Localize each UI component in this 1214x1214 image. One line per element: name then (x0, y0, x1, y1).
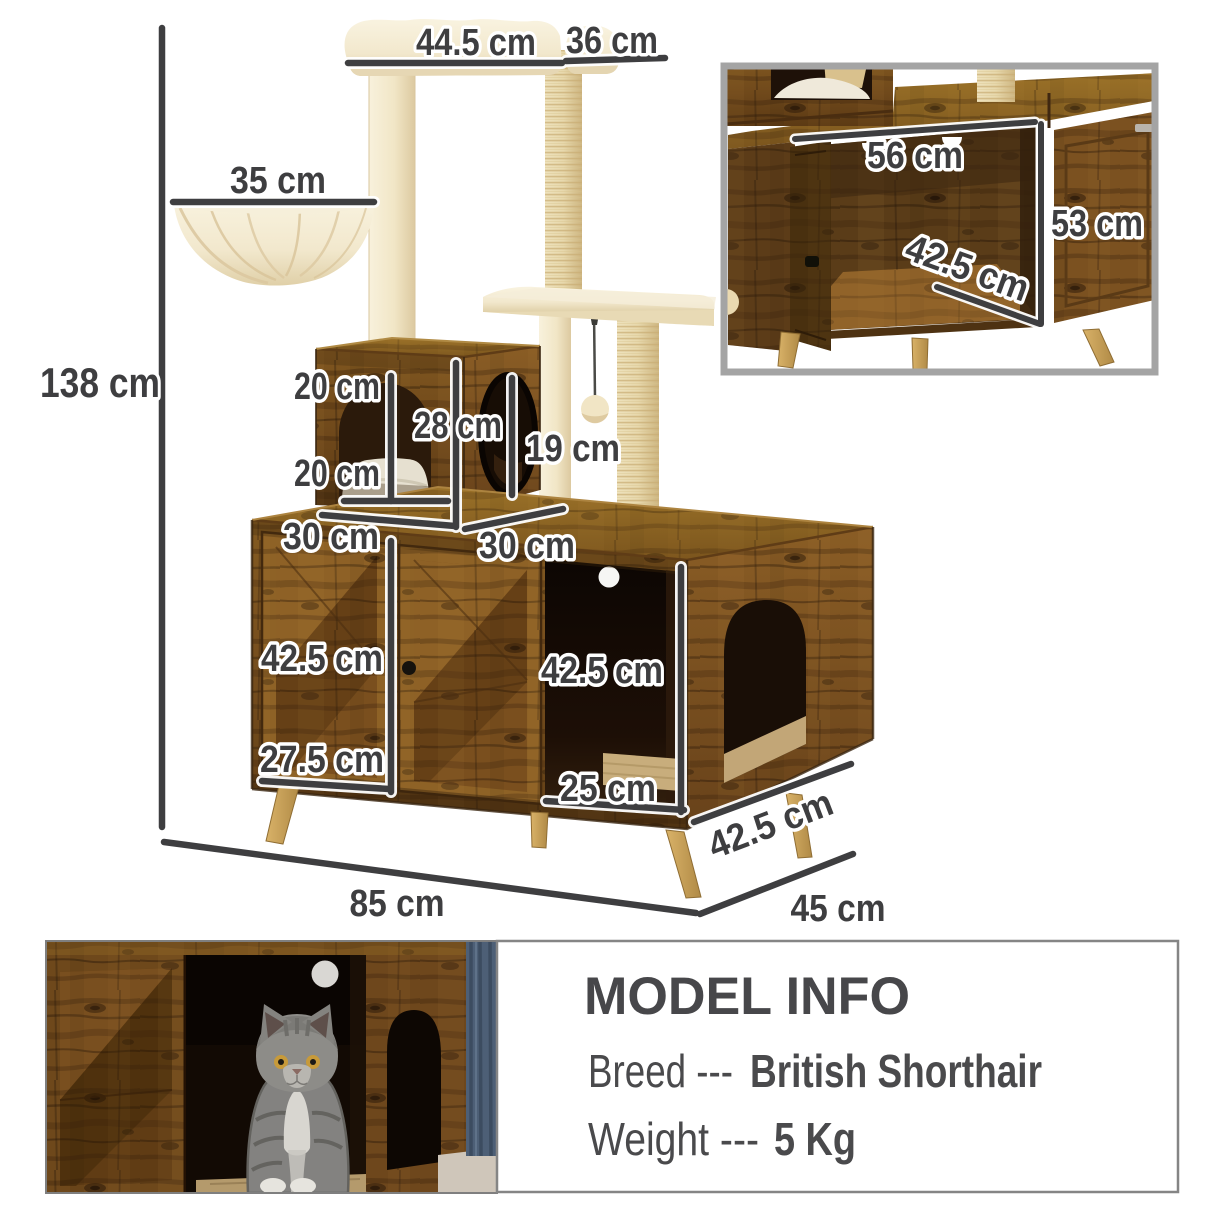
svg-text:44.5 cm: 44.5 cm (416, 22, 536, 64)
svg-text:36 cm: 36 cm (566, 20, 658, 62)
svg-text:Weight ---: Weight --- (588, 1113, 759, 1165)
svg-text:Breed ---: Breed --- (588, 1045, 733, 1097)
svg-text:35 cm: 35 cm (230, 160, 326, 202)
svg-text:45 cm: 45 cm (791, 888, 886, 930)
svg-text:19 cm: 19 cm (526, 428, 620, 470)
svg-text:56 cm: 56 cm (867, 135, 963, 177)
svg-text:28 cm: 28 cm (414, 405, 502, 447)
svg-text:British Shorthair: British Shorthair (750, 1045, 1042, 1097)
svg-text:25 cm: 25 cm (560, 768, 656, 810)
svg-text:138 cm: 138 cm (40, 359, 160, 406)
svg-text:20 cm: 20 cm (294, 453, 380, 495)
svg-text:42.5 cm: 42.5 cm (261, 638, 383, 680)
svg-text:20 cm: 20 cm (294, 366, 380, 408)
svg-text:5 Kg: 5 Kg (774, 1113, 856, 1165)
svg-text:MODEL INFO: MODEL INFO (584, 967, 910, 1026)
svg-text:53 cm: 53 cm (1051, 203, 1143, 245)
svg-text:42.5 cm: 42.5 cm (541, 650, 663, 692)
svg-text:30 cm: 30 cm (283, 516, 379, 558)
svg-text:27.5 cm: 27.5 cm (260, 739, 384, 781)
svg-text:30 cm: 30 cm (479, 525, 575, 567)
svg-text:85 cm: 85 cm (350, 883, 445, 925)
